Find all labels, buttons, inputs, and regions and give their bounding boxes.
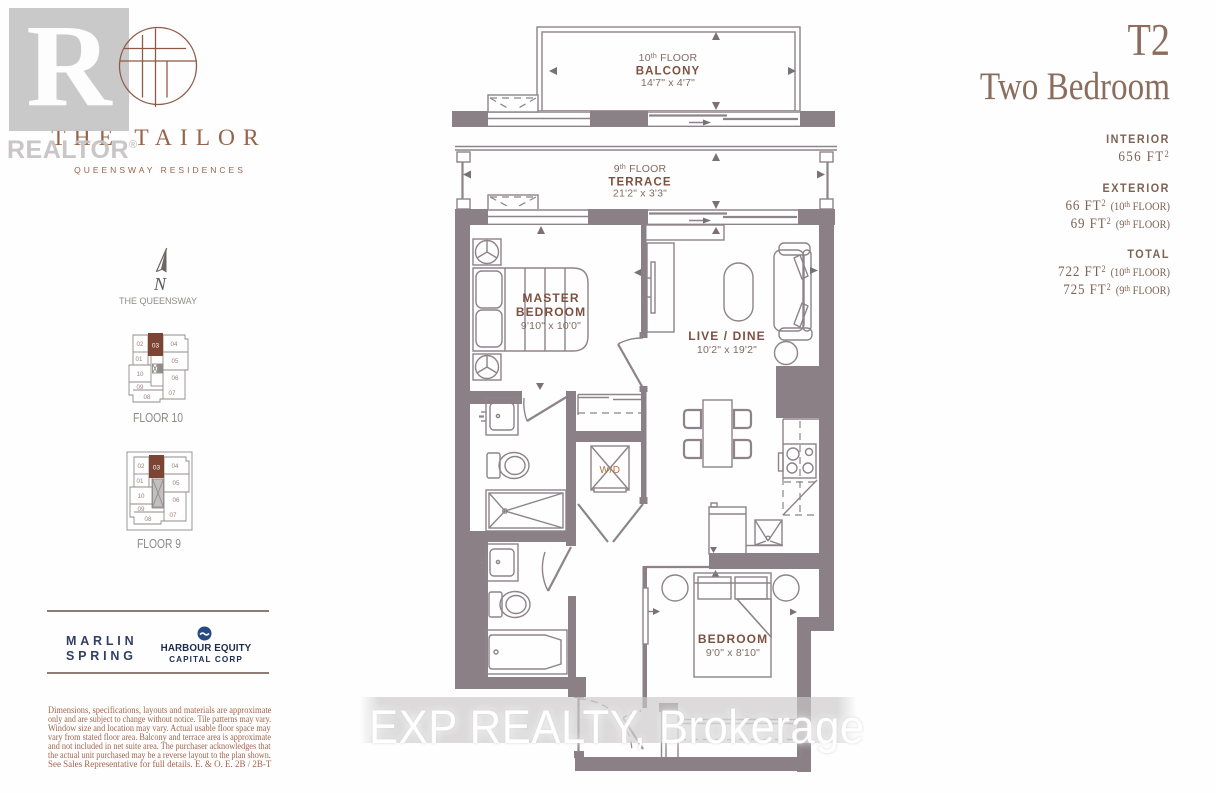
svg-text:FLOOR 10: FLOOR 10 (133, 410, 183, 425)
svg-text:N: N (153, 274, 167, 294)
svg-text:14'7" x 4'7": 14'7" x 4'7" (641, 77, 695, 89)
svg-text:05: 05 (172, 358, 179, 365)
svg-text:04: 04 (171, 341, 178, 348)
svg-text:MASTER: MASTER (522, 291, 579, 305)
svg-text:06: 06 (172, 375, 179, 382)
svg-text:W/D: W/D (600, 465, 621, 476)
svg-text:21'2" x 3'3": 21'2" x 3'3" (613, 188, 667, 200)
svg-text:02: 02 (138, 463, 145, 470)
svg-text:04: 04 (172, 463, 179, 470)
svg-text:07: 07 (170, 512, 177, 519)
svg-text:03: 03 (152, 343, 160, 350)
svg-text:08: 08 (145, 516, 152, 523)
svg-text:03: 03 (153, 465, 161, 472)
svg-text:09: 09 (137, 384, 144, 391)
svg-text:9'10" x 10'0": 9'10" x 10'0" (521, 320, 581, 332)
svg-text:LIVE / DINE: LIVE / DINE (688, 329, 765, 343)
svg-text:10th FLOOR: 10th FLOOR (639, 52, 698, 64)
svg-text:06: 06 (173, 497, 180, 504)
svg-text:BEDROOM: BEDROOM (516, 305, 586, 319)
svg-text:BALCONY: BALCONY (636, 66, 701, 78)
svg-text:01: 01 (136, 356, 143, 363)
svg-text:10: 10 (138, 493, 145, 500)
svg-text:05: 05 (173, 480, 180, 487)
svg-text:10: 10 (137, 371, 144, 378)
svg-text:10'2" x 19'2": 10'2" x 19'2" (697, 344, 757, 356)
svg-text:9'0" x 8'10": 9'0" x 8'10" (706, 647, 760, 659)
svg-text:01: 01 (137, 478, 144, 485)
svg-text:9th FLOOR: 9th FLOOR (614, 163, 667, 175)
svg-text:08: 08 (144, 394, 151, 401)
svg-text:09: 09 (138, 506, 145, 513)
svg-text:02: 02 (137, 341, 144, 348)
svg-text:FLOOR 9: FLOOR 9 (137, 536, 181, 551)
svg-text:BEDROOM: BEDROOM (698, 632, 768, 646)
svg-text:07: 07 (169, 390, 176, 397)
